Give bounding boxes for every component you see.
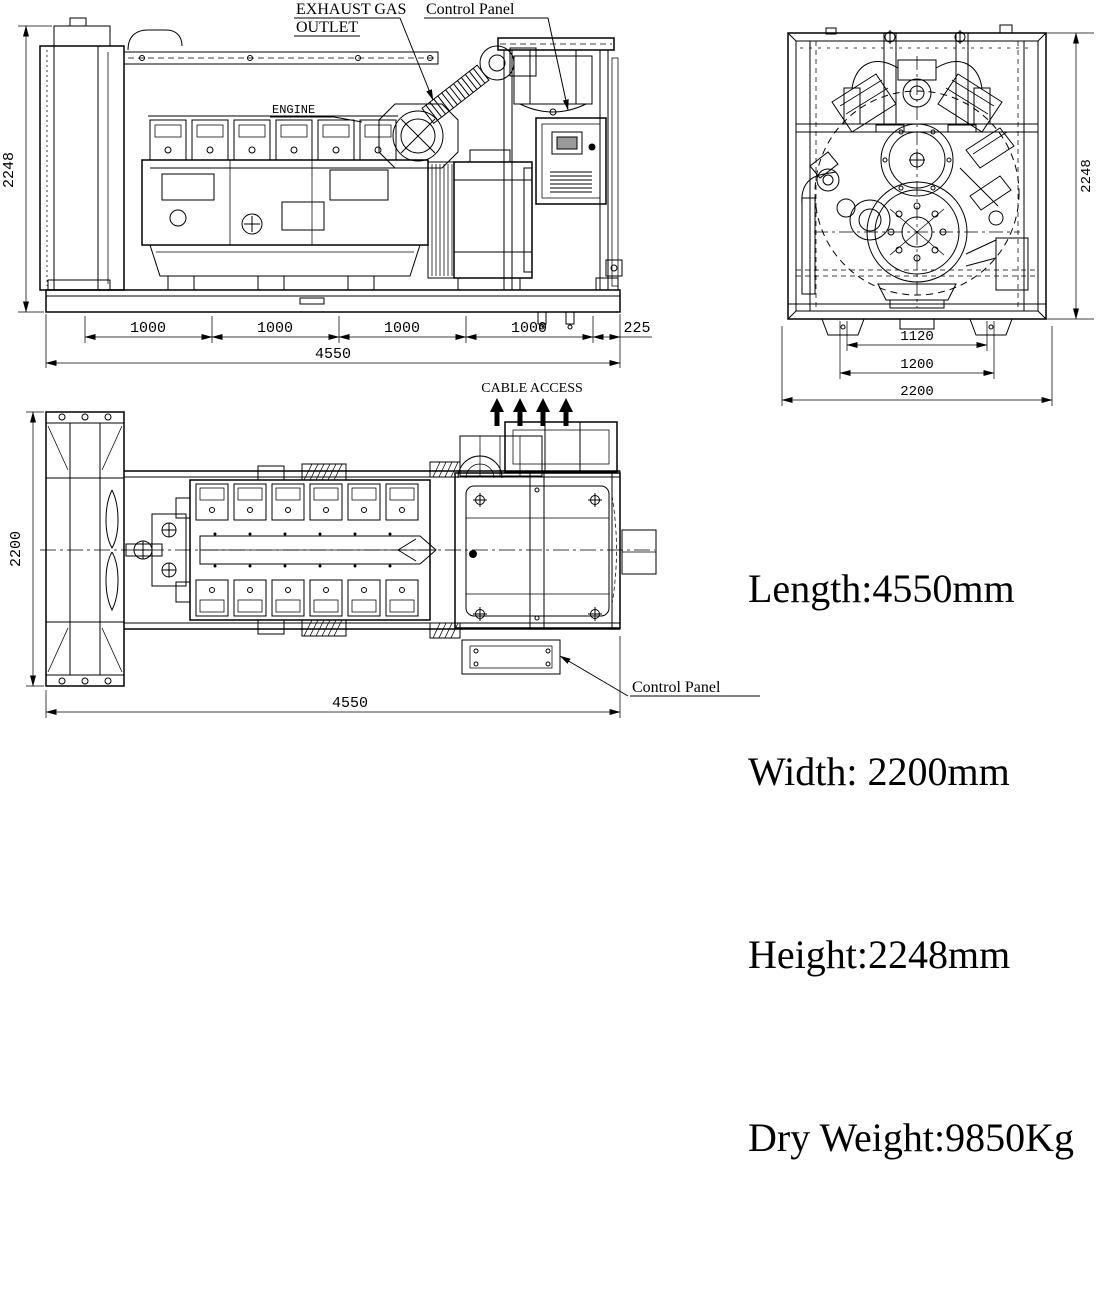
dim-side-total-value: 4550 (315, 346, 351, 363)
engine-label: ENGINE (272, 103, 315, 117)
dim-end-2200: 2200 (900, 384, 934, 400)
dimension-top-width: 2200 (8, 412, 44, 686)
dimension-top-total: 4550 (46, 636, 620, 718)
cable-access-arrows: CABLE ACCESS (481, 381, 583, 426)
radiator-side (40, 18, 438, 290)
exhaust-silencer-top (458, 422, 617, 478)
engine-side (142, 116, 428, 290)
dim-side-seg4: 1000 (511, 320, 547, 337)
exhaust-gas-outlet-label: EXHAUST GAS (296, 1, 406, 18)
radiator-top (46, 412, 124, 686)
dimension-side-height: 2248 (1, 26, 52, 312)
spec-dry-weight: Dry Weight:9850Kg (748, 1107, 1074, 1168)
alternator-side (428, 150, 532, 290)
fan-top (106, 490, 186, 610)
dim-side-seg2: 1000 (257, 320, 293, 337)
dim-end-height-value: 2248 (1079, 159, 1095, 193)
end-view: 1120 1200 2200 2248 (770, 8, 1099, 418)
dimension-side-total: 4550 (46, 346, 620, 363)
dimension-end-height: 2248 (1046, 33, 1095, 319)
dim-side-seg1: 1000 (130, 320, 166, 337)
silencer-side (514, 50, 592, 115)
dim-side-height-value: 2248 (1, 152, 18, 188)
cable-access-label: CABLE ACCESS (481, 381, 583, 396)
engine-top (176, 464, 436, 636)
dim-side-seg5: 225 (623, 320, 650, 337)
alternator-top (455, 473, 620, 628)
dimension-end-inner-width: 1120 (847, 321, 987, 351)
exhaust-gas-outlet-label-line2: OUTLET (296, 19, 358, 36)
dim-top-width-value: 2200 (8, 531, 25, 567)
top-view: CABLE ACCESS Control Panel (0, 378, 770, 727)
control-panel-label-top: Control Panel (632, 679, 721, 696)
control-panel-top: Control Panel (462, 640, 760, 696)
specifications-block: Length:4550mm Width: 2200mm Height:2248m… (748, 436, 1074, 1290)
control-panel-label-side: Control Panel (426, 1, 515, 18)
dim-end-1120: 1120 (900, 329, 934, 345)
control-panel-side (536, 118, 606, 204)
genset-dimension-drawing: EXHAUST GAS OUTLET Control Panel ENGINE … (0, 0, 1099, 727)
side-view: EXHAUST GAS OUTLET Control Panel ENGINE … (0, 0, 690, 376)
spec-height: Height:2248mm (748, 924, 1074, 985)
spec-width: Width: 2200mm (748, 741, 1074, 802)
dim-side-seg3: 1000 (384, 320, 420, 337)
spec-length: Length:4550mm (748, 558, 1074, 619)
exhaust-bellows (422, 46, 536, 123)
dim-end-1200: 1200 (900, 357, 934, 373)
dim-top-total-value: 4550 (332, 695, 368, 712)
